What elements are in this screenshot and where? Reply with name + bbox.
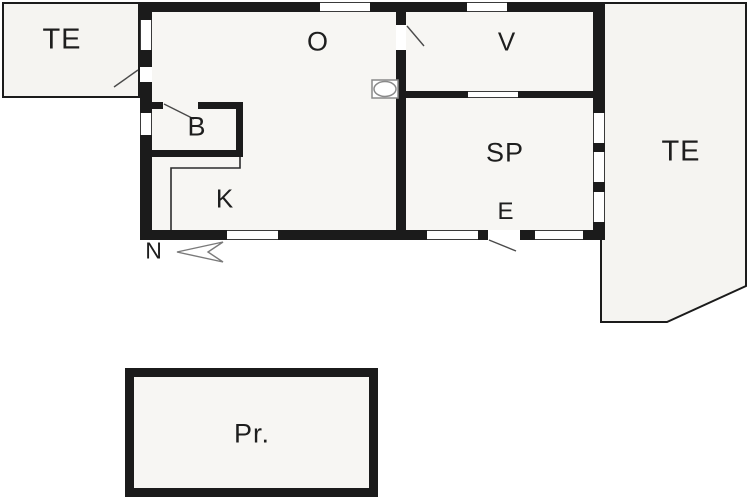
wall-b-south [152, 150, 236, 157]
door-gap-o-to-v [396, 25, 406, 50]
window-south-e2 [535, 230, 583, 240]
room-label-kitchen: K [216, 184, 234, 215]
window-west-b [140, 113, 152, 135]
door-swing-entrance [489, 240, 516, 251]
window-north-v [467, 2, 507, 12]
room-label-terrace-right: TE [661, 136, 700, 169]
window-west-o [140, 20, 152, 50]
door-gap-terrace-west [140, 67, 152, 82]
wall-b-top-left [152, 102, 163, 109]
window-east-3 [593, 192, 605, 222]
room-label-outbuilding: Pr. [234, 419, 270, 450]
window-north-o [320, 2, 370, 12]
window-divider-sp [468, 91, 518, 98]
room-label-living: O [307, 27, 329, 58]
building-floor [140, 2, 605, 240]
wall-b-top-right [198, 102, 236, 109]
north-arrow-icon [177, 242, 223, 262]
wall-b-east [236, 102, 243, 157]
room-label-sp: SP [486, 138, 524, 169]
window-east-2 [593, 152, 605, 182]
wall-north [140, 2, 605, 12]
room-label-v: V [498, 27, 516, 58]
door-gap-entrance [488, 230, 520, 240]
room-label-bathroom: B [187, 112, 206, 143]
window-south-e1 [427, 230, 478, 240]
room-label-entrance: E [497, 198, 514, 226]
window-east-1 [593, 113, 605, 143]
room-label-terrace-left: TE [42, 24, 81, 57]
window-south-k [227, 230, 278, 240]
compass-label-north: N [145, 238, 163, 265]
floor-plan-canvas: TE O V B SP K E TE Pr. N [0, 0, 750, 500]
